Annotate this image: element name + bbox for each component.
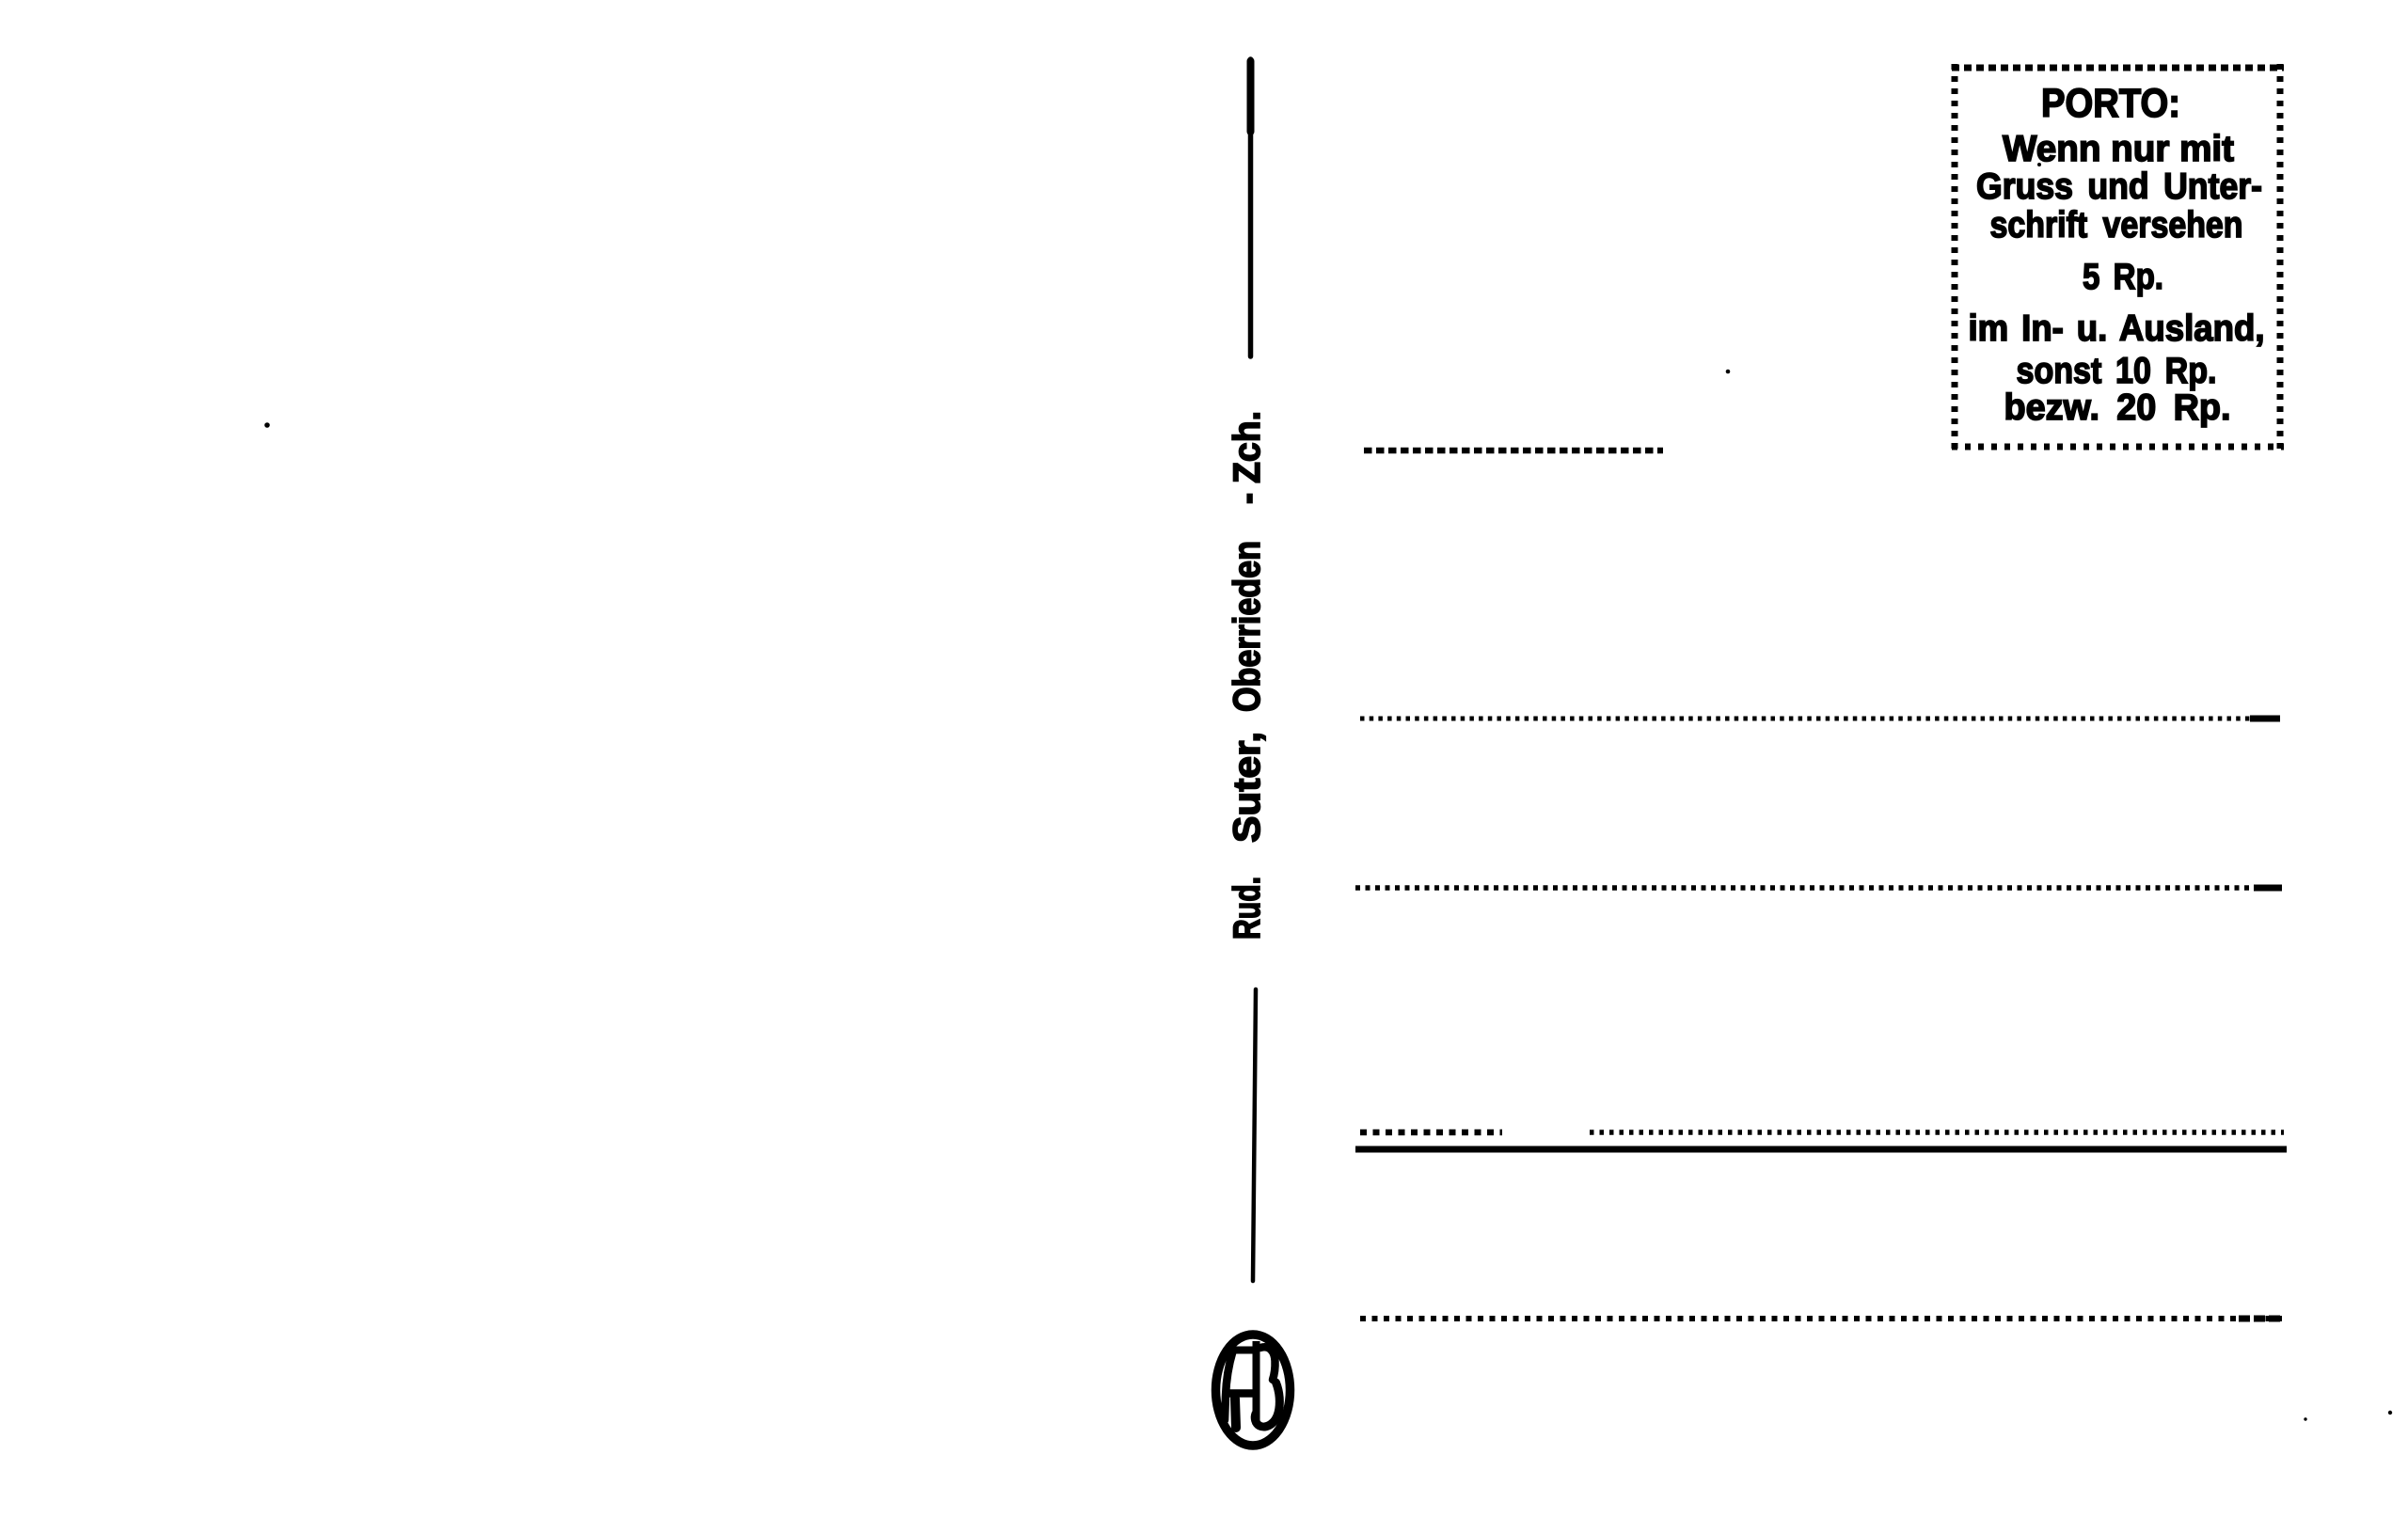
svg-text:im In- u. Ausland,: im In- u. Ausland,: [1969, 308, 2265, 349]
svg-text:Suter,: Suter,: [1227, 732, 1268, 843]
svg-text:sonst 10 Rp.: sonst 10 Rp.: [2017, 351, 2217, 391]
svg-text:5 Rp.: 5 Rp.: [2083, 257, 2163, 297]
svg-text:Zch.: Zch.: [1227, 411, 1268, 483]
svg-text:Wenn nur mit: Wenn nur mit: [2003, 129, 2234, 169]
svg-text:schrift versehen: schrift versehen: [1990, 205, 2243, 245]
svg-text:bezw. 20 Rp.: bezw. 20 Rp.: [2004, 387, 2231, 428]
svg-text:Gruss und Unter-: Gruss und Unter-: [1976, 166, 2262, 207]
svg-text:-: -: [1227, 493, 1268, 504]
svg-text:Rud.: Rud.: [1227, 877, 1268, 940]
svg-text:PORTO:: PORTO:: [2041, 81, 2180, 126]
svg-text:Oberrieden: Oberrieden: [1227, 541, 1268, 712]
